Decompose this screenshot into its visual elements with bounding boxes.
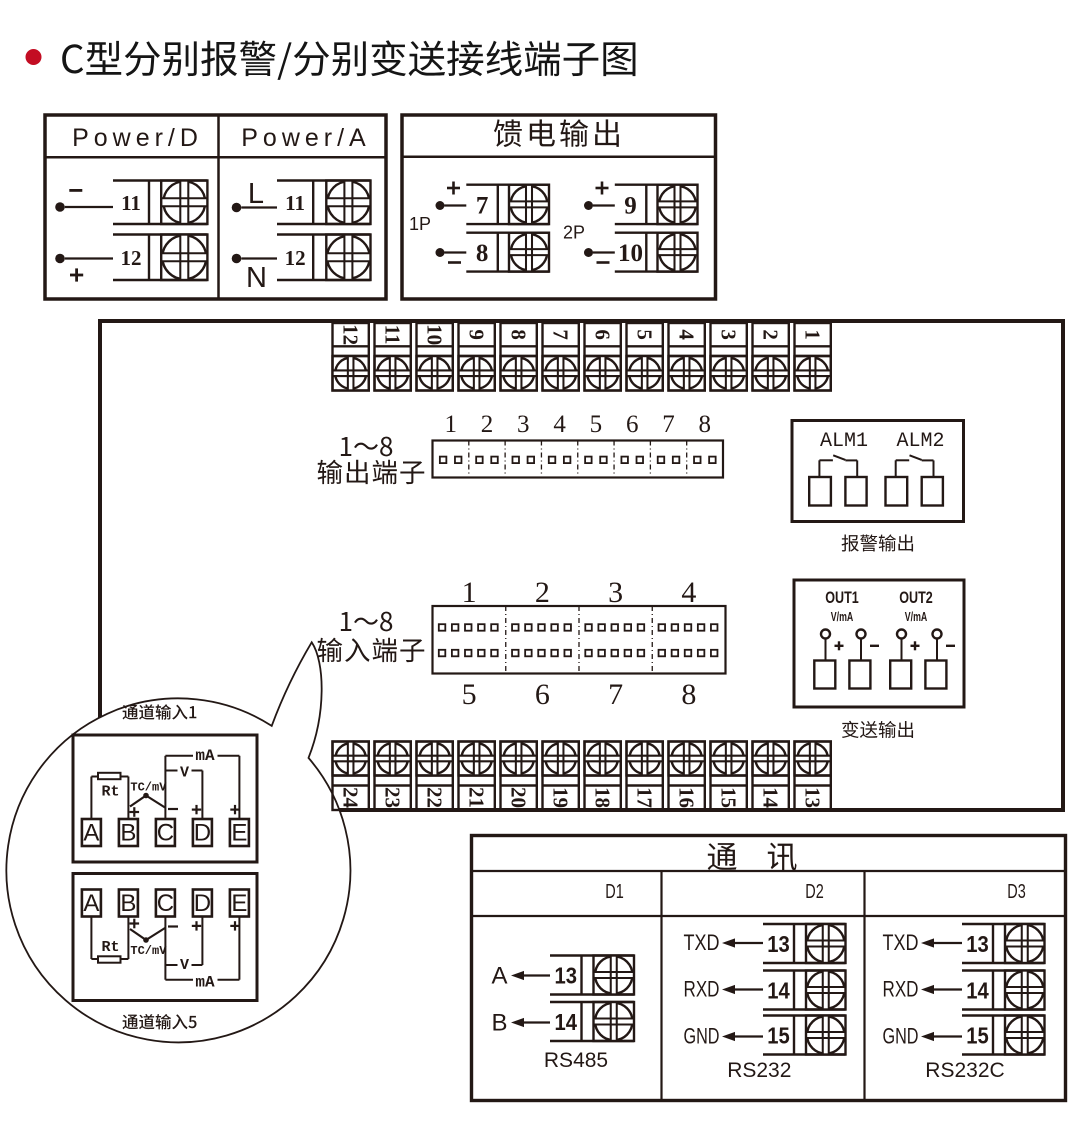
svg-text:7: 7 (608, 678, 623, 711)
svg-text:V: V (180, 957, 189, 974)
svg-text:ALM1: ALM1 (820, 430, 868, 453)
svg-text:mA: mA (195, 973, 215, 991)
svg-text:15: 15 (966, 1022, 989, 1048)
svg-text:B: B (120, 820, 136, 847)
svg-text:9: 9 (465, 329, 489, 340)
svg-text:1: 1 (462, 576, 477, 609)
svg-text:5: 5 (633, 329, 657, 340)
svg-text:22: 22 (423, 787, 447, 808)
svg-text:7: 7 (476, 192, 489, 219)
svg-text:C: C (157, 820, 174, 847)
svg-text:8: 8 (507, 329, 531, 340)
svg-text:OUT1: OUT1 (825, 589, 859, 607)
svg-text:1: 1 (444, 411, 457, 438)
svg-text:5: 5 (462, 678, 477, 711)
svg-text:RS232: RS232 (727, 1059, 791, 1082)
svg-text:14: 14 (767, 977, 790, 1003)
svg-text:9: 9 (624, 192, 637, 219)
svg-text:6: 6 (535, 678, 550, 711)
svg-text:20: 20 (507, 787, 531, 808)
svg-text:19: 19 (549, 787, 573, 808)
svg-text:4: 4 (681, 576, 696, 609)
svg-text:V: V (180, 764, 189, 781)
svg-text:RS485: RS485 (544, 1049, 608, 1072)
svg-text:2: 2 (481, 411, 494, 438)
svg-text:GND: GND (883, 1024, 919, 1049)
svg-text:V/mA: V/mA (905, 610, 928, 624)
svg-text:E: E (231, 820, 247, 847)
svg-text:D2: D2 (805, 881, 824, 903)
svg-text:1: 1 (801, 329, 825, 340)
svg-text:4: 4 (675, 329, 699, 340)
svg-text:A: A (491, 963, 507, 990)
svg-text:8: 8 (681, 678, 696, 711)
svg-text:17: 17 (633, 787, 657, 808)
svg-text:18: 18 (591, 787, 615, 808)
svg-text:13: 13 (801, 787, 825, 808)
svg-text:TC/mV: TC/mV (130, 781, 167, 795)
svg-text:11: 11 (381, 325, 405, 345)
svg-text:D: D (194, 890, 211, 917)
svg-text:3: 3 (717, 329, 741, 340)
svg-text:Power/A: Power/A (241, 124, 370, 152)
svg-text:24: 24 (339, 787, 363, 809)
svg-text:RXD: RXD (684, 977, 720, 1002)
svg-text:1P: 1P (409, 214, 431, 234)
svg-text:13: 13 (767, 931, 790, 957)
svg-text:B: B (491, 1010, 507, 1037)
svg-text:D3: D3 (1007, 881, 1026, 903)
svg-text:mA: mA (195, 747, 215, 765)
svg-text:3: 3 (517, 411, 530, 438)
svg-text:13: 13 (555, 962, 578, 988)
svg-text:GND: GND (684, 1024, 720, 1049)
svg-text:12: 12 (285, 246, 306, 270)
svg-text:16: 16 (675, 787, 699, 808)
svg-text:OUT2: OUT2 (899, 589, 933, 607)
svg-text:D1: D1 (605, 881, 624, 903)
svg-text:A: A (83, 820, 99, 847)
svg-text:8: 8 (699, 411, 712, 438)
svg-text:E: E (231, 890, 247, 917)
svg-text:15: 15 (717, 787, 741, 808)
svg-text:14: 14 (759, 787, 783, 809)
svg-text:3: 3 (608, 576, 623, 609)
svg-text:2P: 2P (563, 223, 585, 243)
svg-text:Rt: Rt (101, 784, 119, 801)
svg-text:V/mA: V/mA (831, 610, 854, 624)
svg-text:4: 4 (553, 411, 566, 438)
svg-text:11: 11 (285, 191, 305, 215)
svg-text:14: 14 (555, 1009, 578, 1035)
svg-text:15: 15 (767, 1022, 790, 1048)
svg-text:TC/mV: TC/mV (130, 944, 167, 958)
svg-text:7: 7 (662, 411, 675, 438)
svg-text:RS232C: RS232C (925, 1059, 1004, 1082)
svg-text:L: L (248, 178, 264, 210)
svg-text:TXD: TXD (684, 930, 720, 955)
svg-text:12: 12 (339, 324, 363, 345)
svg-text:6: 6 (591, 329, 615, 340)
svg-text:21: 21 (465, 787, 489, 808)
svg-text:C: C (157, 890, 174, 917)
svg-text:6: 6 (626, 411, 639, 438)
svg-text:7: 7 (549, 329, 573, 340)
svg-text:23: 23 (381, 787, 405, 808)
svg-text:13: 13 (966, 931, 989, 957)
svg-text:2: 2 (759, 329, 783, 340)
svg-text:11: 11 (121, 191, 141, 215)
svg-text:2: 2 (535, 576, 550, 609)
svg-text:A: A (83, 890, 99, 917)
svg-text:TXD: TXD (883, 930, 919, 955)
svg-text:RXD: RXD (883, 977, 919, 1002)
svg-text:5: 5 (590, 411, 603, 438)
svg-text:12: 12 (121, 246, 142, 270)
svg-text:D: D (194, 820, 211, 847)
svg-text:8: 8 (476, 240, 489, 267)
svg-text:B: B (120, 890, 136, 917)
svg-text:N: N (246, 262, 267, 294)
svg-text:Power/D: Power/D (72, 124, 203, 152)
svg-text:10: 10 (618, 240, 643, 267)
svg-text:10: 10 (423, 324, 447, 345)
svg-text:ALM2: ALM2 (896, 430, 944, 453)
svg-text:Rt: Rt (101, 939, 119, 956)
svg-text:14: 14 (966, 977, 989, 1003)
